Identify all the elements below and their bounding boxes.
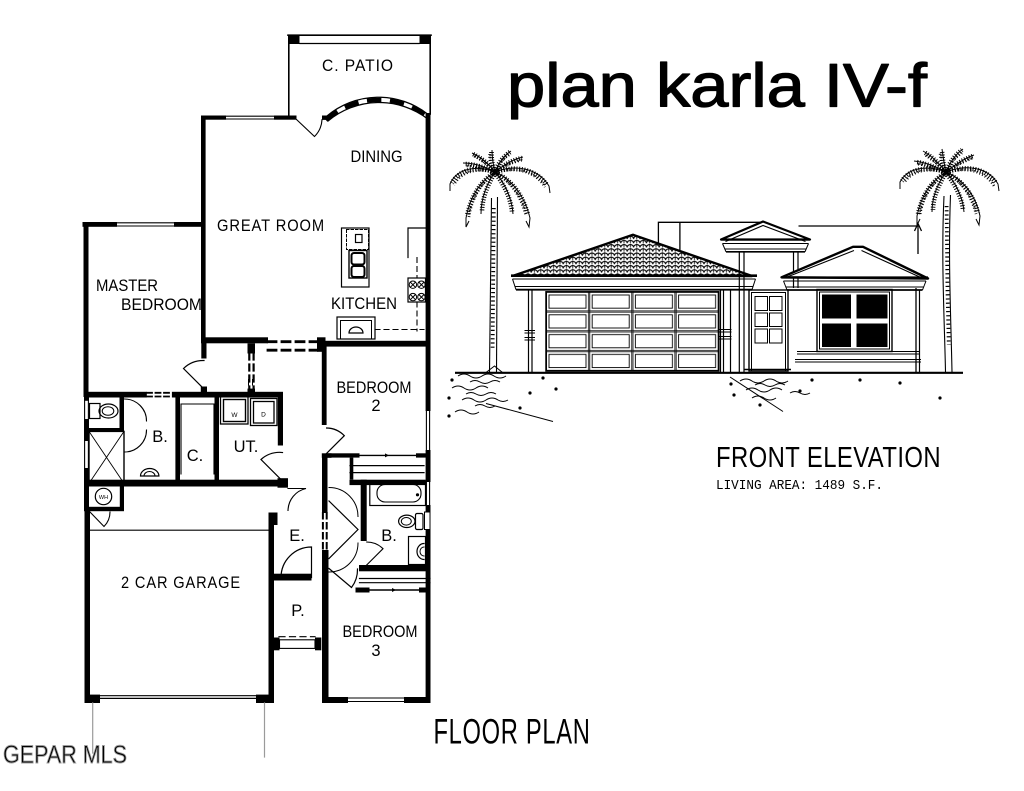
svg-text:GREAT ROOM: GREAT ROOM xyxy=(217,217,325,235)
svg-text:BEDROOM: BEDROOM xyxy=(337,379,412,397)
svg-text:KITCHEN: KITCHEN xyxy=(331,295,397,313)
svg-text:W: W xyxy=(231,412,238,419)
svg-text:plan karla IV-f: plan karla IV-f xyxy=(507,52,928,121)
svg-text:C. PATIO: C. PATIO xyxy=(322,57,394,75)
svg-text:DINING: DINING xyxy=(351,148,403,166)
svg-text:LIVING AREA: 1489 S.F.: LIVING AREA: 1489 S.F. xyxy=(716,478,883,494)
svg-text:E.: E. xyxy=(289,527,305,545)
svg-text:B.: B. xyxy=(381,527,397,545)
svg-text:2 CAR GARAGE: 2 CAR GARAGE xyxy=(121,574,241,592)
svg-text:2: 2 xyxy=(371,397,380,415)
svg-text:D: D xyxy=(261,412,266,419)
svg-text:P.: P. xyxy=(291,602,304,620)
svg-text:3: 3 xyxy=(371,642,380,660)
svg-text:FLOOR PLAN: FLOOR PLAN xyxy=(434,713,591,752)
svg-text:GEPAR MLS: GEPAR MLS xyxy=(3,741,127,769)
svg-text:UT.: UT. xyxy=(234,438,259,456)
svg-text:C.: C. xyxy=(187,447,204,465)
svg-text:FRONT ELEVATION: FRONT ELEVATION xyxy=(716,442,941,474)
svg-text:B.: B. xyxy=(152,428,168,446)
svg-text:BEDROOM: BEDROOM xyxy=(343,623,418,641)
svg-text:BEDROOM: BEDROOM xyxy=(121,296,202,314)
svg-text:MASTER: MASTER xyxy=(96,277,158,295)
svg-text:WH: WH xyxy=(99,495,108,501)
